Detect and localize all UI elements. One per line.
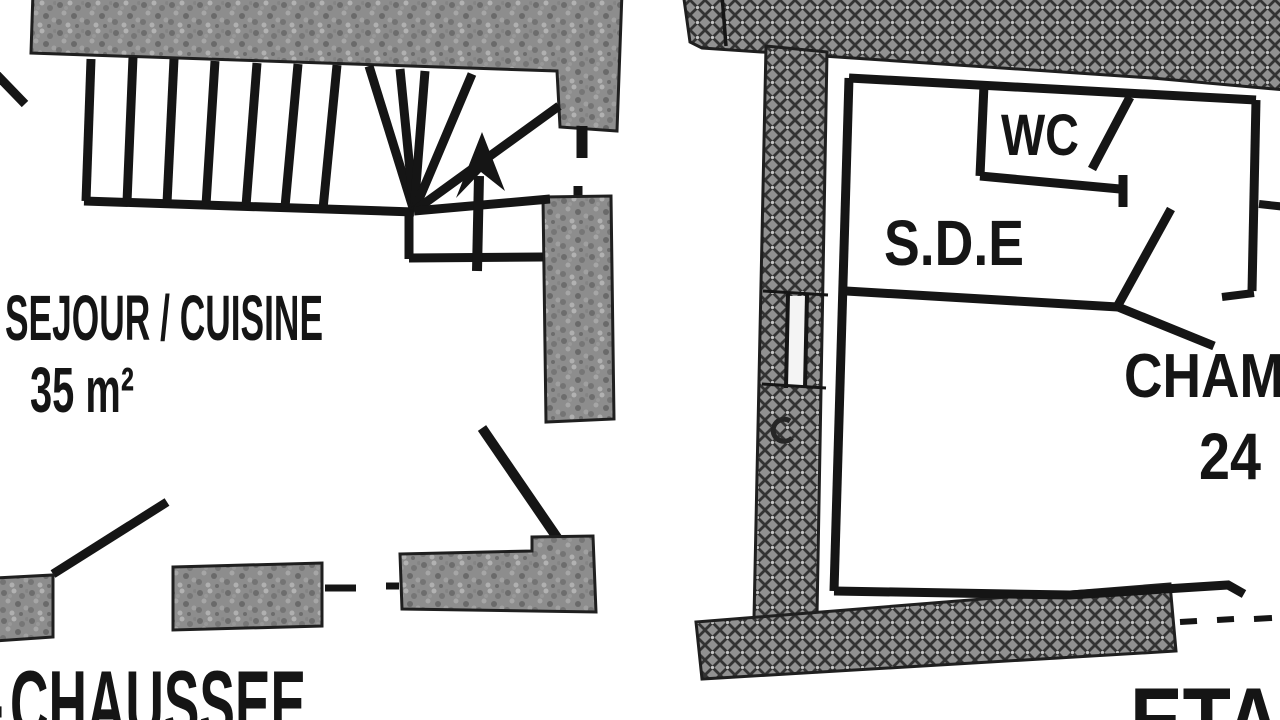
ground-right-wall (543, 196, 614, 422)
room-label-chambre: CHAM (1124, 342, 1280, 411)
interior-right-wall (1252, 100, 1256, 291)
room-label-sejour-cuisine: SEJOUR / CUISINE (5, 282, 323, 354)
wc-partition-bottom (980, 176, 1120, 189)
floor-label-fragment: - (0, 651, 5, 720)
door-swing-bottom-left (53, 502, 167, 574)
interior-left-wall (834, 78, 849, 591)
room-area-chambre: 24 (1199, 419, 1261, 493)
door-swing-bottom-right (482, 428, 558, 539)
room-label-wc: WC (1001, 103, 1079, 168)
upper-floor-plan: WC S.D.E CHAM 24 ETA (683, 0, 1280, 720)
threshold-dashes-upper (1180, 618, 1272, 622)
floor-label-upper: ETA (1130, 668, 1280, 720)
interior-bottom-wall (834, 585, 1244, 595)
stair-treads (86, 57, 337, 209)
door-swing-top-left (0, 74, 25, 104)
chambre-door-jamb (1222, 293, 1254, 297)
room-area-sejour-cuisine: 35 m² (30, 354, 134, 426)
threshold-dashes-ground (325, 586, 399, 588)
floor-label-ground: CHAUSSEE (10, 651, 306, 720)
ground-floor-plan: SEJOUR / CUISINE 35 m² - CHAUSSEE (0, 0, 622, 720)
interior-right-tick (1259, 204, 1280, 207)
wc-partition-left (980, 85, 984, 176)
chambre-door-swing (1117, 209, 1171, 307)
room-label-sde: S.D.E (884, 207, 1024, 279)
ground-top-wall (31, 0, 622, 131)
floor-plan-drawing: SEJOUR / CUISINE 35 m² - CHAUSSEE (0, 0, 1280, 720)
ground-bottom-left-wall (0, 575, 53, 641)
ground-bottom-middle-wall (173, 563, 322, 630)
staircase (84, 57, 559, 271)
floor-plan-canvas: SEJOUR / CUISINE 35 m² - CHAUSSEE (0, 0, 1280, 720)
wc-door-swing (1092, 97, 1130, 169)
ground-bottom-right-wall (400, 536, 596, 612)
sde-partition-bottom (846, 291, 1118, 307)
stair-void-edge (1118, 307, 1214, 346)
